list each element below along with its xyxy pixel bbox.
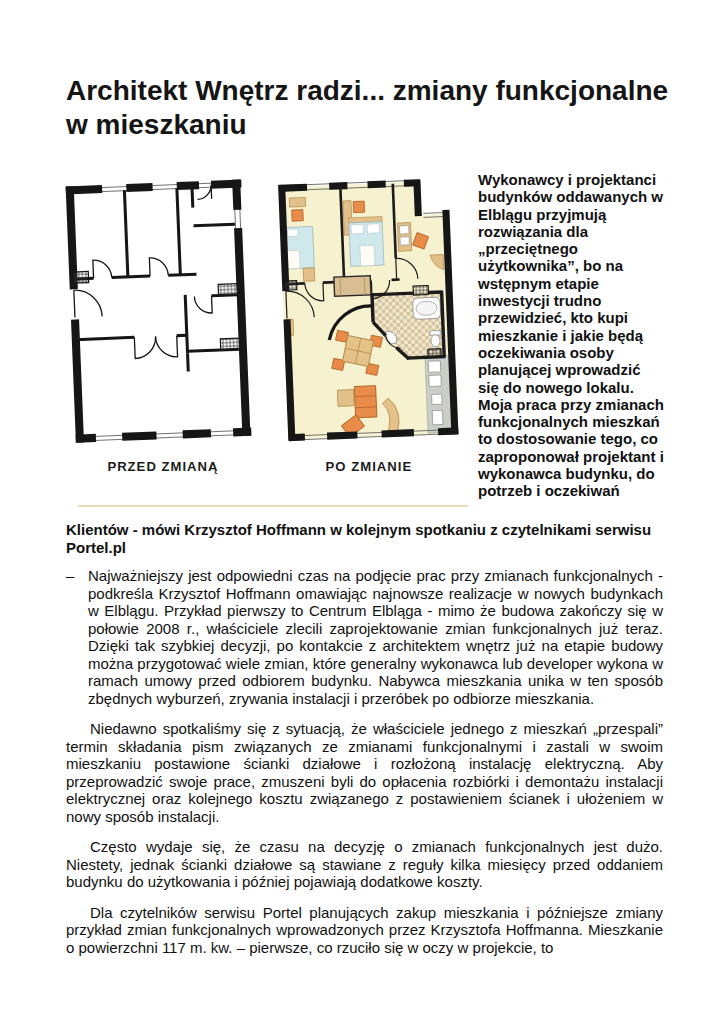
floorplan-after-drawing: PO ZMIANIE	[276, 168, 474, 480]
floorplan-before-image: PRZED ZMIANĄ	[63, 168, 271, 480]
floorplan-after-image: PO ZMIANIE	[276, 168, 474, 480]
figure-divider-line	[78, 505, 468, 507]
body-paragraph: Dla czytelników serwisu Portel planujący…	[66, 904, 663, 957]
dash-bullet: –	[66, 567, 74, 585]
document-page: Architekt Wnętrz radzi... zmiany funkcjo…	[0, 0, 724, 1024]
lead-side-text: Wykonawcy i projektanci budynków oddawan…	[478, 171, 665, 500]
floorplan-before-drawing: PRZED ZMIANĄ	[63, 168, 271, 480]
article-body: – Najważniejszy jest odpowiedni czas na …	[66, 567, 663, 956]
body-paragraph: Często wydaje się, że czasu na decyzję o…	[66, 838, 663, 891]
lead-continuation-text: Klientów - mówi Krzysztof Hoffmann w kol…	[66, 521, 663, 557]
body-paragraph: – Najważniejszy jest odpowiedni czas na …	[66, 567, 663, 707]
body-paragraph-text: Najważniejszy jest odpowiedni czas na po…	[88, 567, 663, 707]
body-paragraph: Niedawno spotkaliśmy się z sytuacją, że …	[66, 720, 663, 825]
floorplan-before-caption: PRZED ZMIANĄ	[107, 459, 218, 474]
floorplan-after-caption: PO ZMIANIE	[326, 459, 413, 474]
page-title: Architekt Wnętrz radzi... zmiany funkcjo…	[66, 74, 686, 142]
